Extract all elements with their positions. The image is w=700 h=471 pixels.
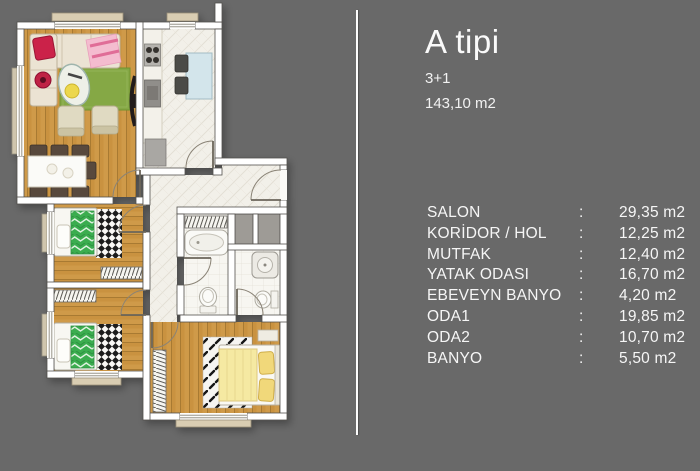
- room-colon: :: [579, 328, 619, 349]
- room-row: KORİDOR / HOL:12,25 m2: [427, 224, 689, 245]
- room-area: 10,70 m2: [619, 328, 689, 349]
- plan-type: 3+1: [425, 66, 500, 91]
- floorplan-panel: [0, 0, 360, 466]
- room-colon: :: [579, 265, 619, 286]
- floorplan: [0, 0, 360, 466]
- toilet: [200, 306, 216, 313]
- room-row: EBEVEYN BANYO:4,20 m2: [427, 286, 689, 307]
- room-label: EBEVEYN BANYO: [427, 286, 579, 307]
- info-panel: A tipi 3+1 143,10 m2: [425, 25, 500, 116]
- plan-total-area: 143,10 m2: [425, 91, 500, 116]
- room-area: 5,50 m2: [619, 349, 689, 370]
- room-row: ODA2:10,70 m2: [427, 328, 689, 349]
- room-colon: :: [579, 224, 619, 245]
- room-label: SALON: [427, 203, 579, 224]
- room-colon: :: [579, 245, 619, 266]
- radiator: [185, 216, 227, 228]
- room-label: YATAK ODASI: [427, 265, 579, 286]
- room-colon: :: [579, 286, 619, 307]
- room-area: 16,70 m2: [619, 265, 689, 286]
- room-area: 19,85 m2: [619, 307, 689, 328]
- room-row: ODA1:19,85 m2: [427, 307, 689, 328]
- panel-divider: [356, 10, 358, 435]
- checkered-rug: [96, 324, 122, 370]
- room-table: SALON:29,35 m2KORİDOR / HOL:12,25 m2MUTF…: [427, 203, 689, 369]
- room-label: ODA2: [427, 328, 579, 349]
- fridge: [145, 139, 166, 166]
- room-label: KORİDOR / HOL: [427, 224, 579, 245]
- room-label: ODA1: [427, 307, 579, 328]
- room-colon: :: [579, 349, 619, 370]
- stove: [145, 44, 161, 66]
- wardrobe: [153, 350, 166, 412]
- nightstand: [258, 330, 278, 341]
- toilet: [271, 291, 278, 308]
- page: { "panel": { "title": "A tipi", "subtitl…: [0, 0, 700, 466]
- room-row: SALON:29,35 m2: [427, 203, 689, 224]
- room-area: 29,35 m2: [619, 203, 689, 224]
- checkered-rug: [96, 209, 122, 258]
- dining-set: [28, 145, 96, 198]
- room-area: 12,40 m2: [619, 245, 689, 266]
- room-colon: :: [579, 203, 619, 224]
- room-label: MUTFAK: [427, 245, 579, 266]
- room-row: BANYO:5,50 m2: [427, 349, 689, 370]
- radiator: [101, 267, 142, 279]
- room-row: YATAK ODASI:16,70 m2: [427, 265, 689, 286]
- room-row: MUTFAK:12,40 m2: [427, 245, 689, 266]
- room-label: BANYO: [427, 349, 579, 370]
- kitchen-table: [186, 53, 212, 99]
- room-area: 4,20 m2: [619, 286, 689, 307]
- room-area: 12,25 m2: [619, 224, 689, 245]
- red-pillow: [32, 35, 56, 60]
- radiator: [53, 290, 96, 302]
- room-colon: :: [579, 307, 619, 328]
- plan-title: A tipi: [425, 25, 500, 59]
